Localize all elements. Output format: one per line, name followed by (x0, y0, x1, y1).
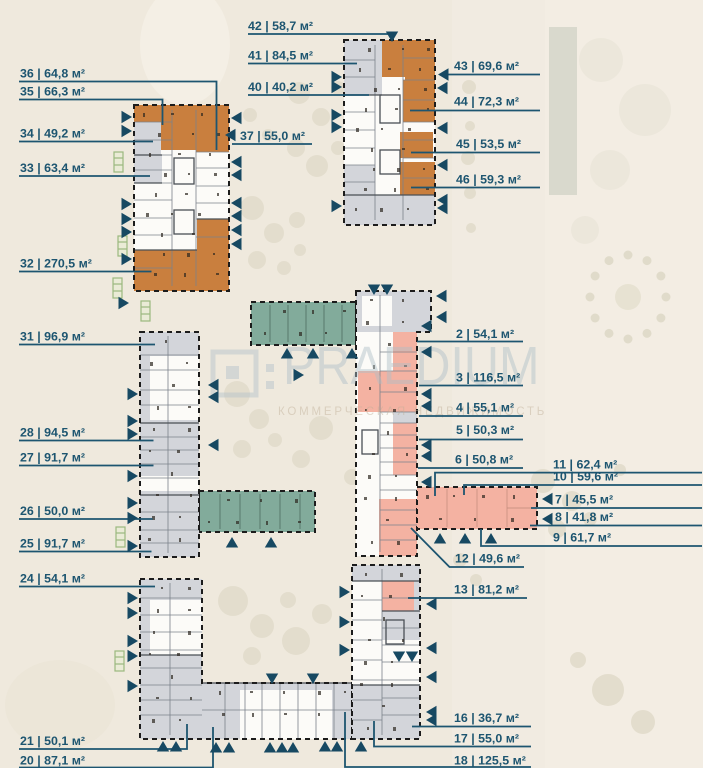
svg-text:31 | 96,9 м²: 31 | 96,9 м² (20, 330, 85, 344)
svg-text:4 | 55,1 м²: 4 | 55,1 м² (456, 401, 514, 415)
svg-text:3 | 116,5 м²: 3 | 116,5 м² (456, 371, 520, 385)
svg-text:34 | 49,2 м²: 34 | 49,2 м² (20, 127, 85, 141)
svg-text:32 | 270,5 м²: 32 | 270,5 м² (20, 257, 92, 271)
svg-text:7 | 45,5 м²: 7 | 45,5 м² (555, 493, 613, 507)
svg-text:21 | 50,1 м²: 21 | 50,1 м² (20, 734, 85, 748)
svg-text:26 | 50,0 м²: 26 | 50,0 м² (20, 504, 85, 518)
svg-text:43 | 69,6 м²: 43 | 69,6 м² (454, 59, 519, 73)
svg-text:40 | 40,2 м²: 40 | 40,2 м² (248, 80, 313, 94)
svg-text:28 | 94,5 м²: 28 | 94,5 м² (20, 426, 85, 440)
svg-text:16 | 36,7 м²: 16 | 36,7 м² (454, 711, 519, 725)
svg-text:6 | 50,8 м²: 6 | 50,8 м² (455, 453, 513, 467)
svg-text:PRAEDIUM: PRAEDIUM (283, 335, 539, 396)
svg-text:25 | 91,7 м²: 25 | 91,7 м² (20, 537, 85, 551)
svg-text:41 | 84,5 м²: 41 | 84,5 м² (248, 49, 313, 63)
svg-text:10 | 59,6 м²: 10 | 59,6 м² (553, 470, 618, 484)
svg-text:24 | 54,1 м²: 24 | 54,1 м² (20, 572, 85, 586)
svg-text:44 | 72,3 м²: 44 | 72,3 м² (454, 95, 519, 109)
svg-text:12 | 49,6 м²: 12 | 49,6 м² (455, 552, 520, 566)
svg-text:20 | 87,1 м²: 20 | 87,1 м² (20, 754, 85, 768)
svg-text:42 | 58,7 м²: 42 | 58,7 м² (248, 19, 313, 33)
svg-text:2 | 54,1 м²: 2 | 54,1 м² (456, 327, 514, 341)
svg-text:35 | 66,3 м²: 35 | 66,3 м² (20, 85, 85, 99)
svg-text:18 | 125,5 м²: 18 | 125,5 м² (454, 754, 526, 768)
svg-text:8 | 41,8 м²: 8 | 41,8 м² (555, 510, 613, 524)
svg-text:5 | 50,3 м²: 5 | 50,3 м² (456, 423, 514, 437)
svg-text:13 | 81,2 м²: 13 | 81,2 м² (454, 583, 519, 597)
svg-text:36 | 64,8 м²: 36 | 64,8 м² (20, 67, 85, 81)
svg-text:46 | 59,3 м²: 46 | 59,3 м² (456, 173, 521, 187)
svg-text:27 | 91,7 м²: 27 | 91,7 м² (20, 451, 85, 465)
svg-text:45 | 53,5 м²: 45 | 53,5 м² (456, 137, 521, 151)
svg-text:9 | 61,7 м²: 9 | 61,7 м² (553, 531, 611, 545)
svg-text:33 | 63,4 м²: 33 | 63,4 м² (20, 161, 85, 175)
svg-text:37 | 55,0 м²: 37 | 55,0 м² (240, 129, 305, 143)
svg-text:17 | 55,0 м²: 17 | 55,0 м² (454, 732, 519, 746)
